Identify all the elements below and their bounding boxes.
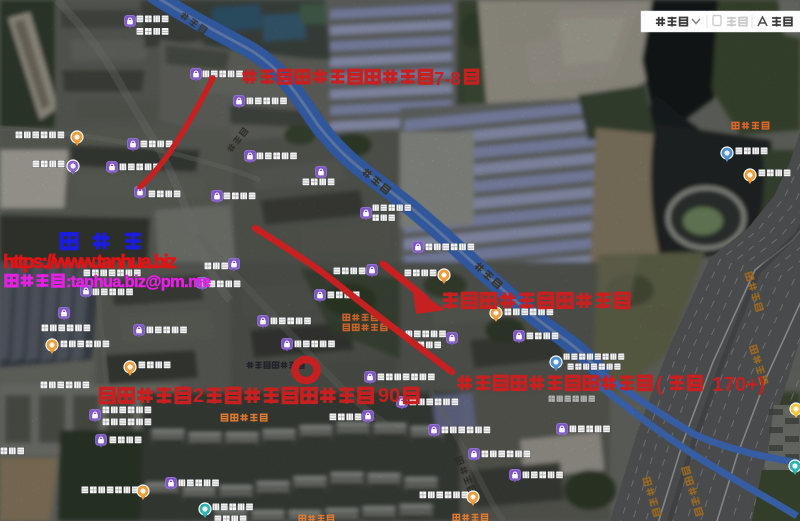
svg-text:(: ( [656, 374, 663, 396]
svg-text:2: 2 [193, 385, 204, 407]
svg-text:90: 90 [378, 385, 400, 407]
svg-text:170+): 170+) [712, 373, 765, 396]
svg-text:7-8: 7-8 [434, 68, 461, 89]
svg-text::tanhua.biz@pm.me: :tanhua.biz@pm.me [66, 273, 211, 291]
svg-text:https://www.tanhua.biz: https://www.tanhua.biz [3, 251, 177, 273]
